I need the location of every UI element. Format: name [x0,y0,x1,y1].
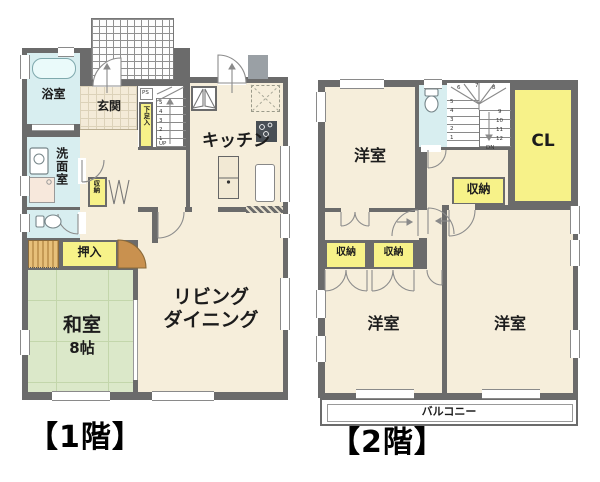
window-2f-top-left [340,79,384,89]
label-storage-b2: 収納 [372,248,415,259]
window-living-right-lower [280,278,290,330]
window-2f-right-upper [570,206,580,234]
window-toilet-left [20,214,30,232]
entrance-door-gap [93,79,120,87]
room-bedroom-bottom-right [447,210,573,393]
toilet-2f-door-gap [421,145,441,152]
window-2f-right-lower [570,330,580,358]
kitchen-island-counter [218,156,239,199]
label-bedroom-tl: 洋室 [325,148,415,165]
bedroom-br-door-gap [449,204,475,211]
toilet-door-gap [78,212,86,234]
window-2f-toilet-top [424,79,442,89]
label-kitchen: キッチン [190,133,282,151]
stairs1-num: 1 [159,137,163,143]
window-bath-left [20,55,30,79]
stairs2-num-top: 6 [457,86,461,92]
label-closet-cl: CL [513,133,573,151]
stairs2-num-right: 12 [496,137,503,143]
floor2-title: 【2階】 [330,427,445,459]
washitsu-sliding-door [133,300,138,380]
window-2f-left-upper [316,92,326,122]
label-oshiire: 押入 [61,246,118,259]
stairs2-num-top: 8 [492,86,496,92]
window-2f-bottom-right [482,389,540,399]
label-shoe-cabinet: 下足入 [142,106,149,126]
label-bedroom-br: 洋室 [447,316,573,333]
window-2f-bottom-left [356,389,414,399]
bathtub-icon [32,58,76,79]
living-door-gap [158,206,185,214]
room-toilet [27,210,80,238]
label-washitsu-line2: 8帖 [38,341,126,357]
refrigerator-space-icon [251,85,280,112]
stairs-floor2-treads-right [479,110,511,147]
kitchen-living-opening [192,206,218,213]
kitchen-sink-icon [255,164,275,202]
hallway-2f-opening [415,210,427,238]
stairs2-num-right: 10 [496,119,503,125]
label-hall-storage: 収納 [92,180,99,193]
kitchen-counter-hatch [246,206,283,213]
stairs1-num: 3 [159,119,163,125]
wall-segment-corridor [152,212,158,243]
stairs2-num-left: 5 [450,100,454,106]
label-stairs-dn: DN [486,146,494,152]
window-2f-left-lower [316,336,326,362]
label-balcony: バルコニー [320,406,578,418]
washroom-door-gap [78,158,86,184]
window-bath-top [58,47,74,57]
label-bedroom-bl: 洋室 [325,316,442,333]
floorplan-image: 浴室 玄関 洗面室 キッチン リビング ダイニング 和室 8帖 押入 収納 下足… [0,0,600,482]
label-storage-mid: 収納 [452,183,505,196]
closet-folding-niche [191,86,217,111]
label-living-line2: ダイニング [146,311,276,331]
window-washroom-left [20,176,30,196]
room-toilet-2f [419,85,447,147]
window-2f-left-mid [316,290,326,318]
closet-wood-tokonoma [28,240,59,268]
stairs2-num-left: 4 [450,109,454,115]
hallway-2f-corridor-left [325,212,419,240]
bath-sliding-door [32,124,74,131]
stairs2-num-left: 1 [450,136,454,142]
window-kitchen-right [280,146,290,202]
kitchen-back-porch-step [248,55,268,79]
stairs2-num-left: 3 [450,118,454,124]
vanity-counter-icon [29,177,55,203]
label-entrance: 玄関 [86,100,132,113]
floor1-title: 【1階】 [28,422,143,454]
label-stairs-up: UP [159,142,166,148]
label-washitsu-line1: 和室 [38,316,126,336]
stairs2-num-right: 9 [498,110,502,116]
label-living-line1: リビング [150,288,272,308]
hallway-2f-corridor-down [427,205,442,270]
label-bath: 浴室 [27,88,80,101]
entrance-porch-tiles [91,18,174,80]
label-pipe-space: PS [142,91,149,97]
window-living-right-upper [280,214,290,238]
window-2f-right-mid [570,240,580,266]
window-living-bottom [152,391,214,401]
stairs2-num-top: 7 [475,84,479,90]
stairs1-num: 2 [159,128,163,134]
stairs2-num-left: 2 [450,127,454,133]
window-washitsu-bottom [52,391,110,401]
window-washitsu-left [20,330,30,355]
label-storage-b1: 収納 [325,248,367,259]
stairs2-num-right: 11 [496,128,503,134]
stairs1-num: 5 [159,101,163,107]
kitchen-back-door-gap [218,76,246,85]
bedroom-tl-door-gap [341,207,369,213]
label-washroom: 洗面室 [55,147,68,186]
stairs1-num: 4 [159,110,163,116]
corridor-patch [138,212,152,240]
